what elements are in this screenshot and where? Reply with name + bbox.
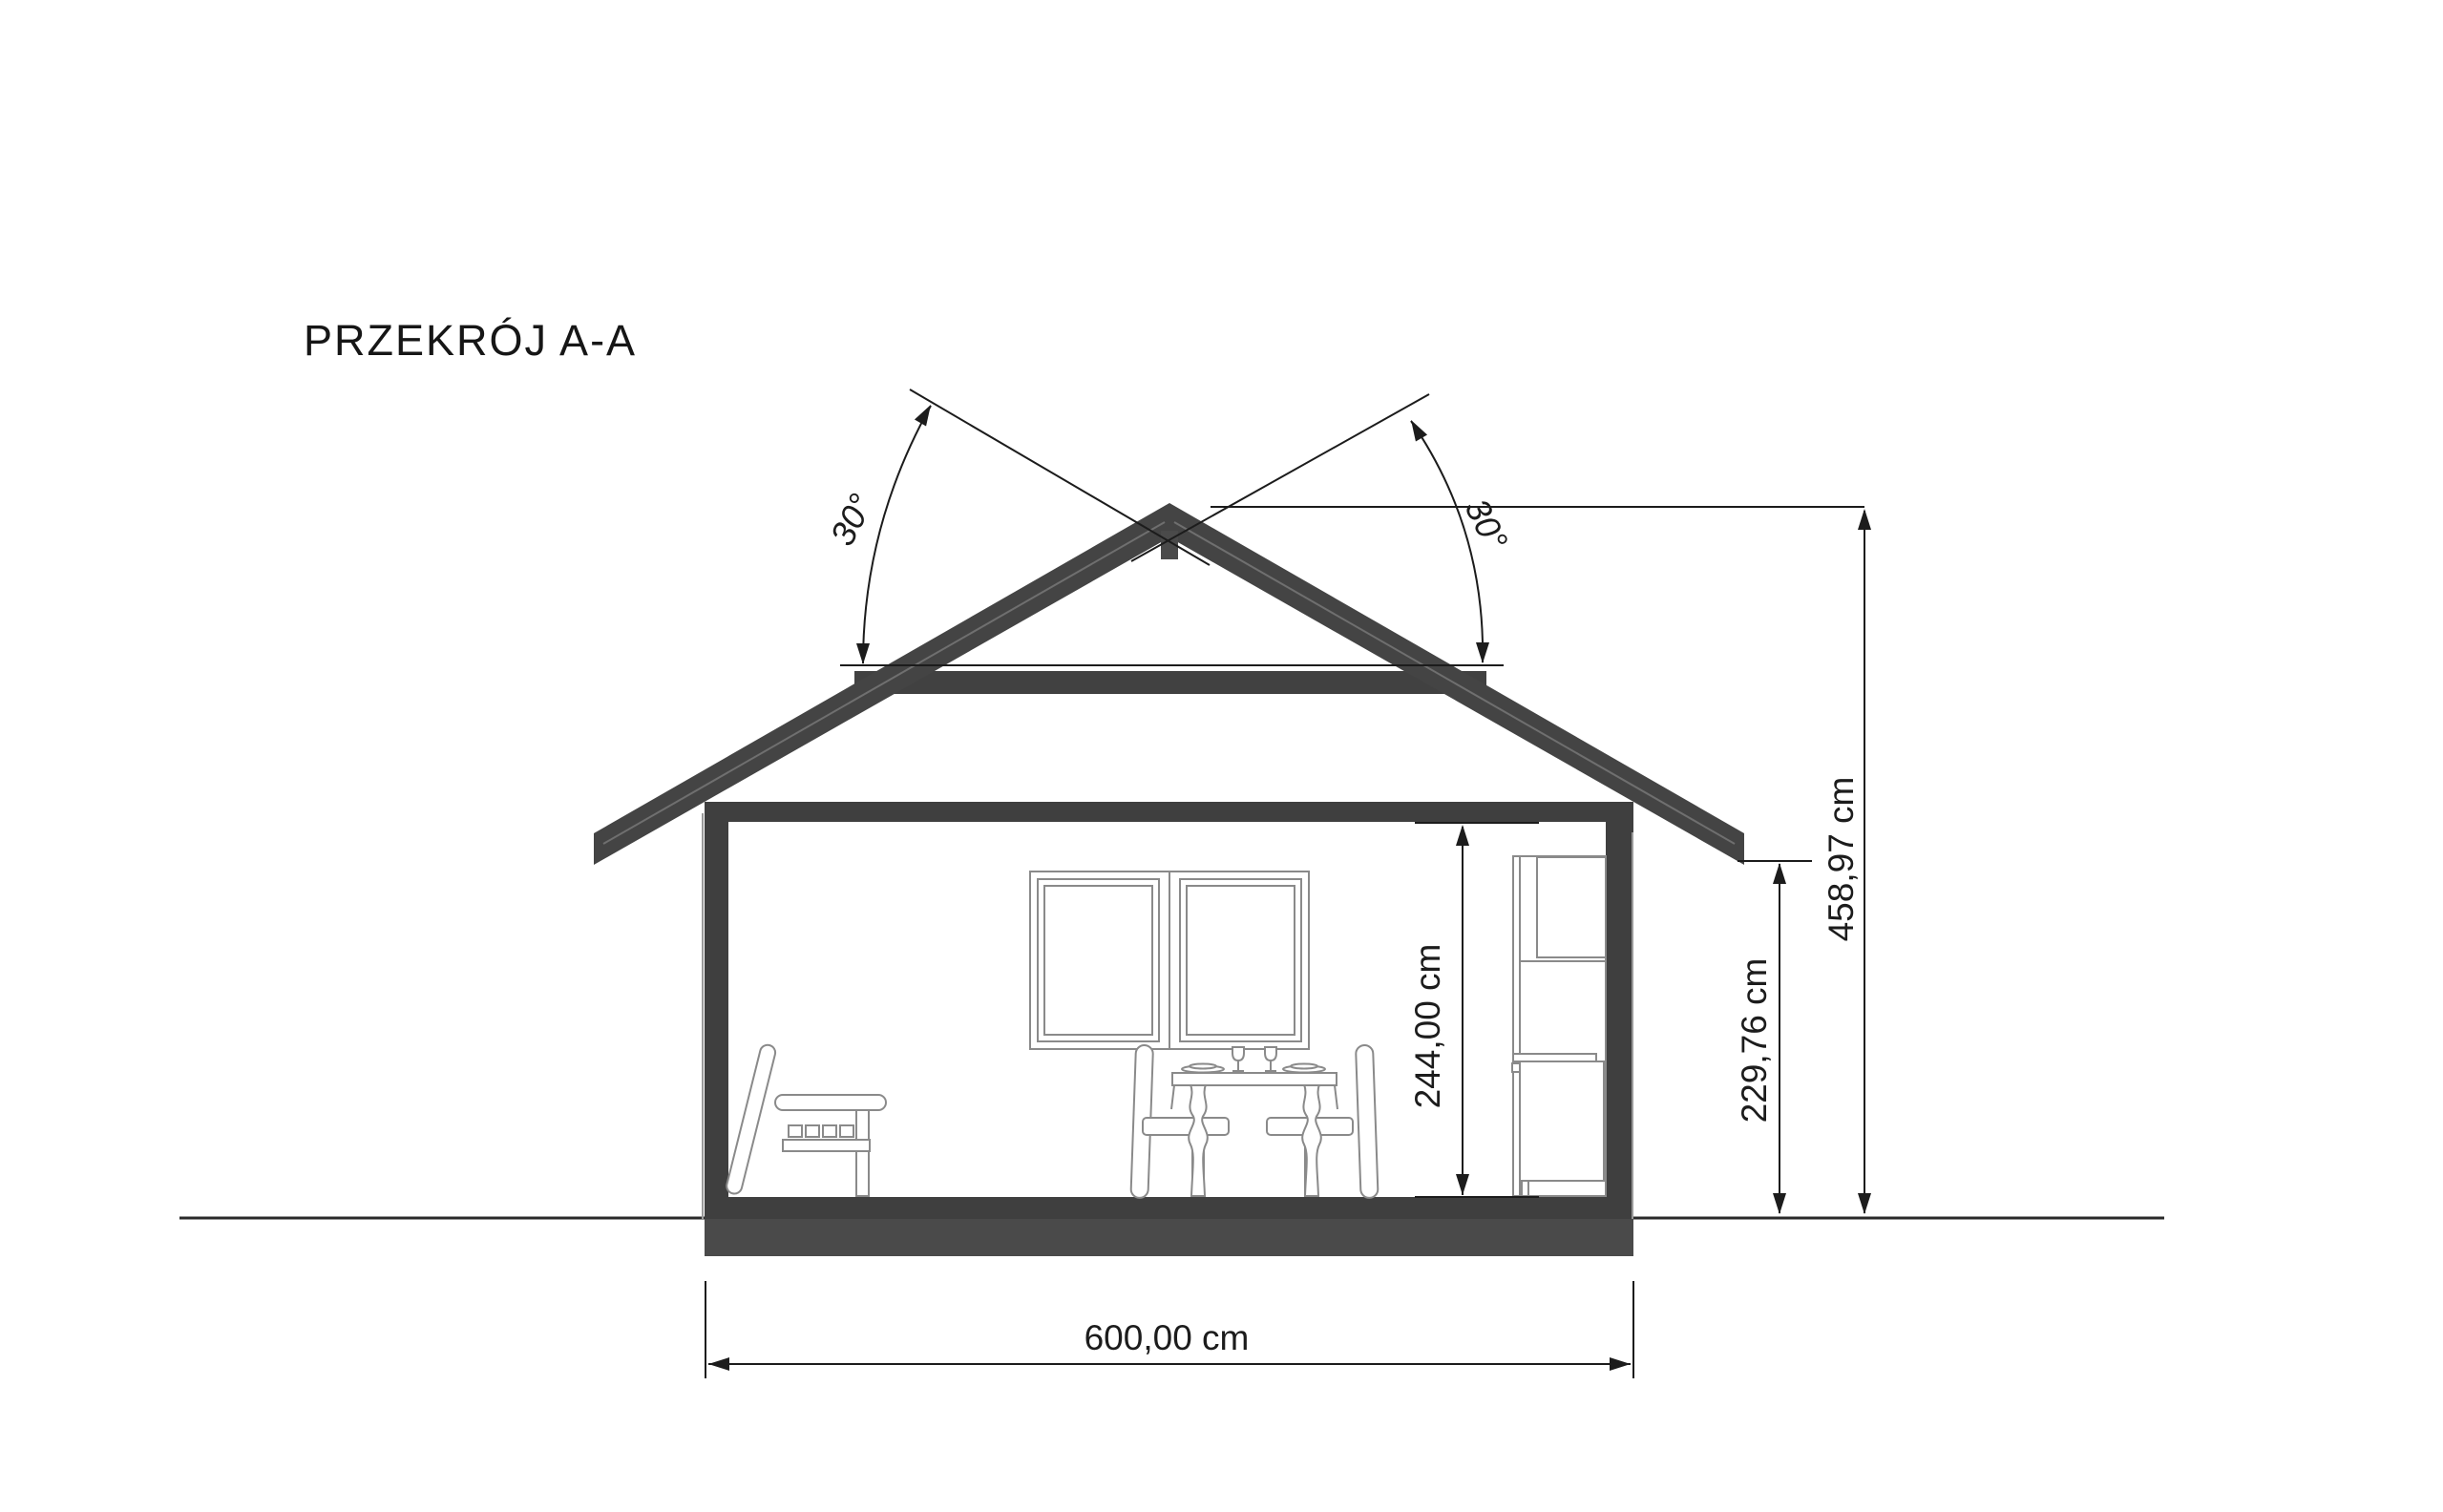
angle-dimension-right: 30° xyxy=(1405,417,1516,664)
cabinet-lower-door xyxy=(1520,1061,1604,1181)
window-left-glass xyxy=(1044,886,1152,1035)
plate xyxy=(1291,1064,1317,1069)
angle-dimension-left: 30° xyxy=(822,402,937,665)
bench-left xyxy=(726,1043,886,1196)
arrow-icon xyxy=(1858,1193,1871,1214)
arrow-icon xyxy=(1773,1193,1786,1214)
bench-slat xyxy=(806,1125,819,1137)
dim-label-total-height: 458,97 cm xyxy=(1822,777,1861,942)
foundation-slab xyxy=(705,1219,1633,1256)
angle-arc-left xyxy=(863,406,931,663)
dining-set xyxy=(1130,1045,1378,1199)
dimension-total-height: 458,97 cm xyxy=(1822,509,1871,1214)
table-top xyxy=(1172,1073,1337,1085)
arrow-icon xyxy=(1858,509,1871,530)
arrow-icon xyxy=(1456,825,1469,846)
window-pair xyxy=(1030,871,1309,1049)
arrow-icon xyxy=(856,643,870,664)
tablecloth-drop xyxy=(1335,1085,1337,1109)
bench-armrest xyxy=(775,1095,886,1110)
arrow-icon xyxy=(915,402,937,427)
table-leg xyxy=(1302,1084,1321,1196)
arrow-icon xyxy=(1773,863,1786,884)
page-title: PRZEKRÓJ A-A xyxy=(304,316,637,365)
window-right-glass xyxy=(1187,886,1295,1035)
dim-label-wall-height: 229,76 cm xyxy=(1735,958,1774,1123)
section-drawing-page: PRZEKRÓJ A-A xyxy=(0,0,2443,1512)
wine-glass xyxy=(1232,1047,1244,1071)
cabinet-upper-door xyxy=(1537,857,1606,957)
table-leg xyxy=(1189,1084,1208,1196)
cabinet-right xyxy=(1512,856,1606,1196)
angle-arc-right xyxy=(1411,421,1483,662)
arrow-icon xyxy=(1456,1174,1469,1195)
bench-back-post xyxy=(726,1043,777,1195)
cabinet-foot xyxy=(1522,1181,1528,1196)
cabinet-counter xyxy=(1513,1054,1596,1061)
arrow-icon xyxy=(1405,417,1427,442)
bench-slat xyxy=(789,1125,802,1137)
section-drawing: PRZEKRÓJ A-A xyxy=(0,0,2443,1512)
bench-slat xyxy=(840,1125,853,1137)
arrow-icon xyxy=(1476,642,1489,663)
tablecloth-drop xyxy=(1171,1085,1174,1109)
wine-glass xyxy=(1265,1047,1276,1071)
bench-front-leg xyxy=(856,1110,869,1196)
arrow-icon xyxy=(1610,1357,1631,1371)
bench-lower-rail xyxy=(783,1140,870,1151)
dimension-wall-height: 229,76 cm xyxy=(1735,861,1812,1214)
chair-left-seat xyxy=(1143,1118,1229,1135)
slope-extension-line-left xyxy=(910,389,1210,565)
dim-label-interior-height: 244,00 cm xyxy=(1408,944,1447,1109)
chair-right-back xyxy=(1356,1045,1379,1199)
dim-label-width: 600,00 cm xyxy=(1085,1318,1250,1357)
angle-label-right: 30° xyxy=(1458,493,1516,556)
plate xyxy=(1190,1064,1216,1069)
bench-slat xyxy=(823,1125,836,1137)
dimension-width: 600,00 cm xyxy=(706,1281,1633,1378)
collar-beam xyxy=(854,671,1486,694)
slope-extension-line-right xyxy=(1131,394,1429,561)
arrow-icon xyxy=(708,1357,729,1371)
angle-label-left: 30° xyxy=(822,488,880,552)
